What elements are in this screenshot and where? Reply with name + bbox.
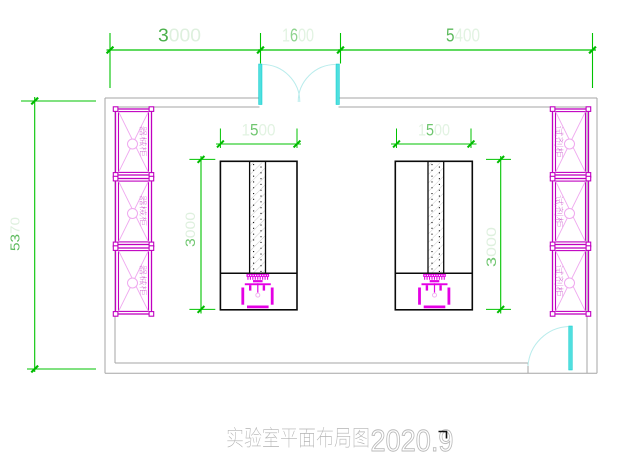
svg-text:5400: 5400	[446, 26, 480, 46]
svg-text:1500: 1500	[242, 121, 276, 140]
svg-text:2020.9: 2020.9	[371, 423, 454, 458]
svg-text:1600: 1600	[282, 26, 314, 46]
svg-text:3000: 3000	[182, 212, 198, 247]
svg-text:3000: 3000	[483, 227, 499, 267]
svg-text:3000: 3000	[158, 26, 201, 46]
svg-text:1500: 1500	[418, 121, 450, 140]
svg-text:5370: 5370	[8, 217, 23, 251]
